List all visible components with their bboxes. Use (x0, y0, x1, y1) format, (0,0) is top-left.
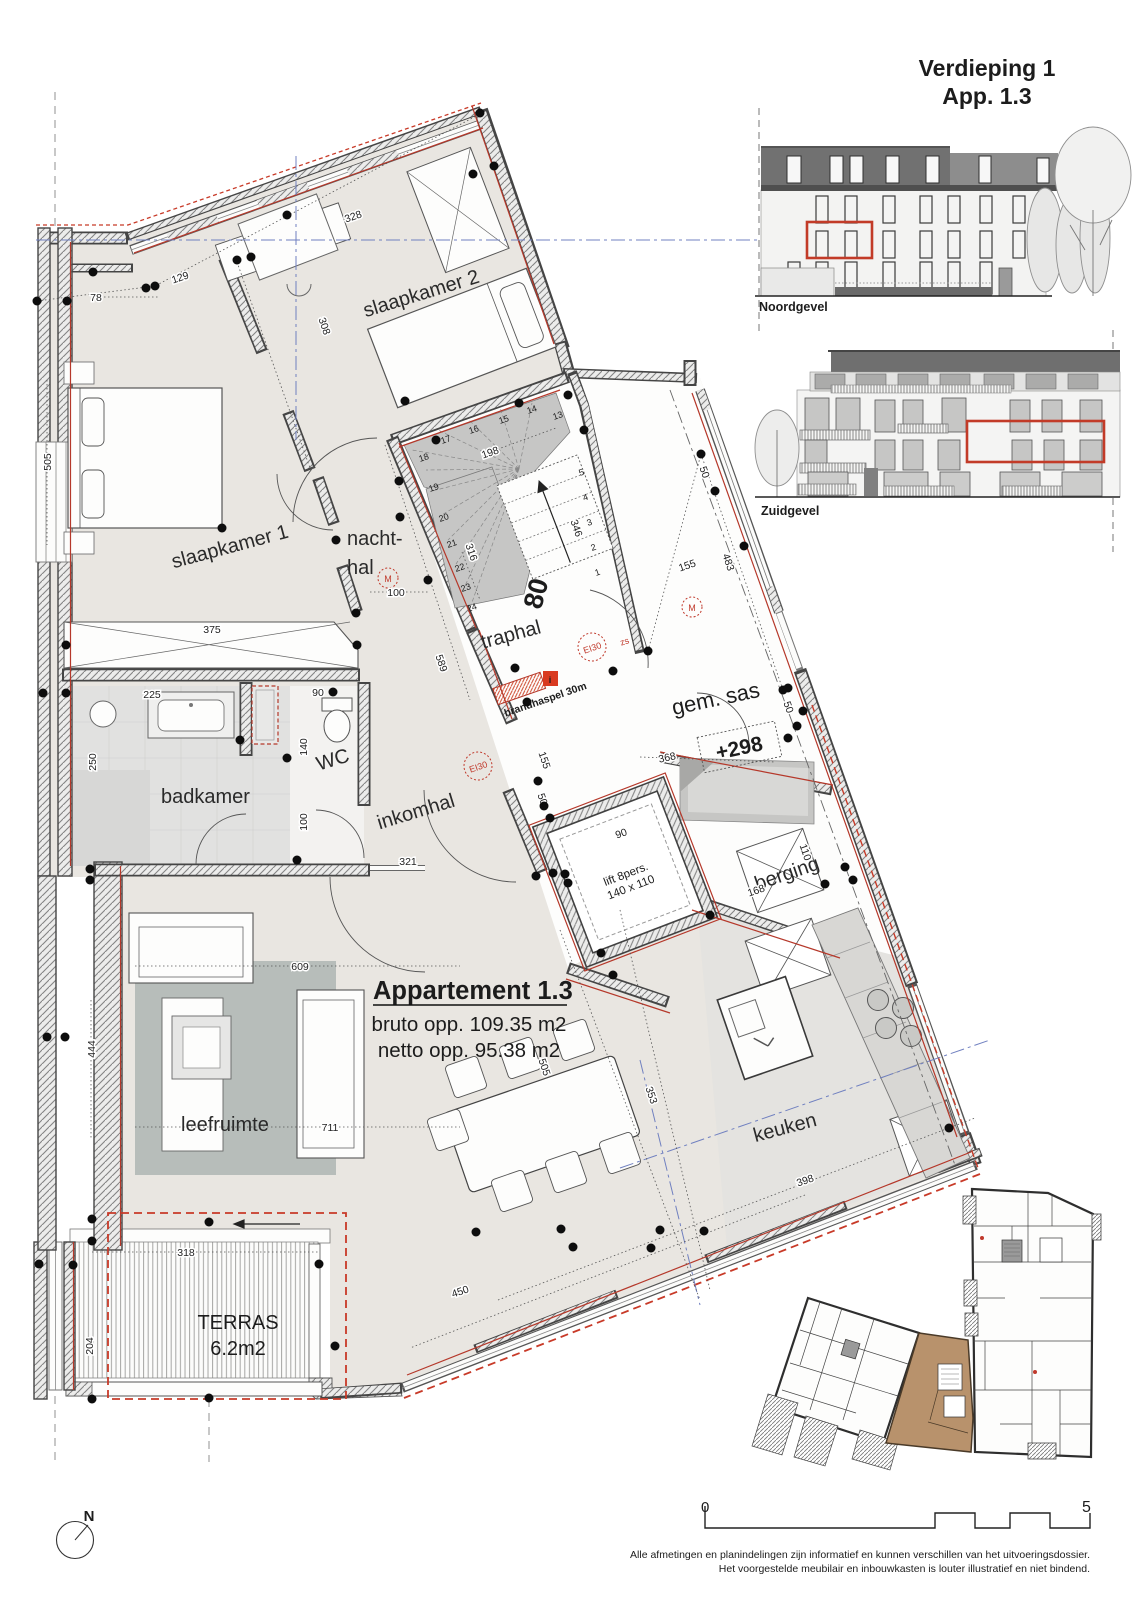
svg-text:Verdieping 1: Verdieping 1 (919, 55, 1056, 81)
svg-text:100: 100 (387, 587, 405, 599)
svg-text:nacht-: nacht- (347, 528, 403, 550)
svg-text:i: i (549, 675, 552, 685)
svg-text:0: 0 (701, 1499, 709, 1516)
svg-text:N: N (84, 1508, 95, 1525)
svg-text:78: 78 (90, 292, 102, 304)
svg-text:90: 90 (312, 687, 324, 699)
svg-text:609: 609 (291, 961, 309, 973)
svg-text:225: 225 (143, 689, 161, 701)
svg-text:Zuidgevel: Zuidgevel (761, 504, 819, 518)
svg-text:6.2m2: 6.2m2 (210, 1338, 266, 1360)
svg-text:bruto opp. 109.35 m2: bruto opp. 109.35 m2 (372, 1013, 567, 1036)
svg-text:375: 375 (203, 624, 221, 636)
svg-text:hal: hal (347, 557, 374, 579)
svg-text:140: 140 (298, 738, 310, 756)
svg-text:321: 321 (399, 856, 417, 868)
svg-text:M: M (384, 574, 392, 584)
svg-text:badkamer: badkamer (161, 786, 250, 808)
svg-text:Alle afmetingen en planindelin: Alle afmetingen en planindelingen zijn i… (630, 1549, 1090, 1561)
svg-text:5: 5 (1082, 1499, 1091, 1516)
svg-text:Appartement 1.3: Appartement 1.3 (373, 977, 573, 1005)
svg-text:App. 1.3: App. 1.3 (942, 83, 1031, 109)
svg-text:204: 204 (84, 1337, 96, 1355)
svg-text:netto opp. 95.38 m2: netto opp. 95.38 m2 (378, 1039, 560, 1062)
svg-text:leefruimte: leefruimte (181, 1114, 269, 1136)
svg-text:Het voorgestelde meubilair en: Het voorgestelde meubilair en inbouwkast… (719, 1563, 1090, 1575)
svg-text:M: M (688, 603, 696, 613)
svg-text:100: 100 (298, 813, 310, 831)
svg-text:TERRAS: TERRAS (197, 1312, 278, 1334)
svg-text:Noordgevel: Noordgevel (759, 300, 828, 314)
svg-text:505: 505 (42, 453, 54, 471)
svg-text:711: 711 (322, 1122, 339, 1134)
svg-text:250: 250 (87, 753, 99, 771)
svg-text:318: 318 (177, 1247, 195, 1259)
svg-text:444: 444 (86, 1040, 98, 1058)
